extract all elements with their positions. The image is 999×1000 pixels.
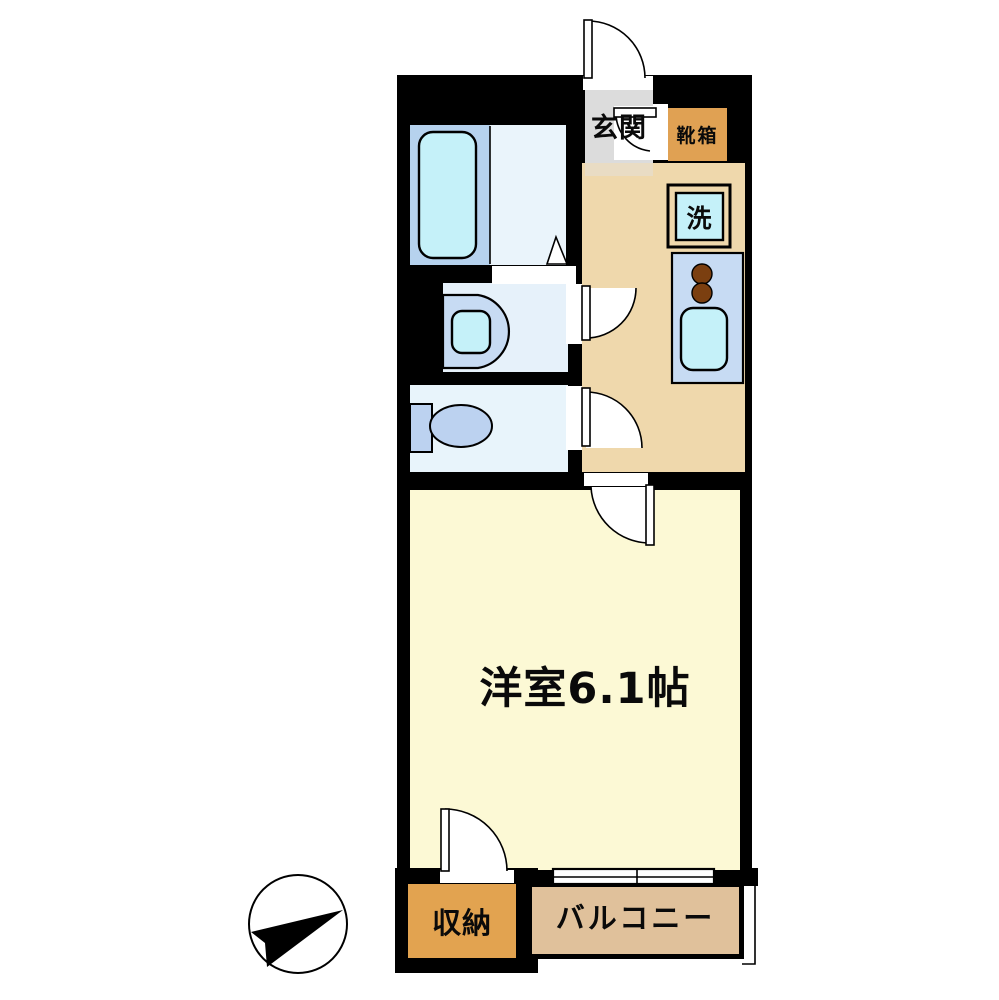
- compass-icon: [249, 875, 347, 973]
- storage-label: 収納: [408, 884, 516, 958]
- bathroom-inner-floor: [490, 125, 566, 265]
- bath-threshold: [492, 266, 576, 284]
- floor-plan: 玄関 靴箱 洗 洋室6.1帖 収納 バルコニー: [0, 0, 999, 1000]
- balcony-label: バルコニー: [527, 882, 744, 949]
- washroom-floor: [443, 283, 568, 372]
- entrance-door-arc: [588, 21, 645, 78]
- entrance-step: [585, 163, 653, 176]
- closet-door-opening: [440, 870, 514, 883]
- entrance-door-swing: [588, 21, 645, 78]
- toilet-room-floor: [410, 385, 568, 472]
- bathroom-floor: [410, 125, 490, 265]
- entrance-door-leaf: [584, 20, 592, 78]
- room-door-opening: [584, 473, 648, 486]
- entrance-label: 玄関: [585, 95, 653, 155]
- entrance-shoebox-gap: [653, 104, 668, 160]
- toilet-door-opening: [566, 386, 582, 450]
- entrance-door-opening: [583, 76, 653, 90]
- washroom-door-opening: [566, 284, 582, 344]
- balcony-offset-bg: [744, 883, 758, 970]
- laundry-label: 洗: [676, 193, 723, 240]
- shoe-box-label: 靴箱: [668, 108, 727, 161]
- western-room-label: 洋室6.1帖: [420, 655, 750, 715]
